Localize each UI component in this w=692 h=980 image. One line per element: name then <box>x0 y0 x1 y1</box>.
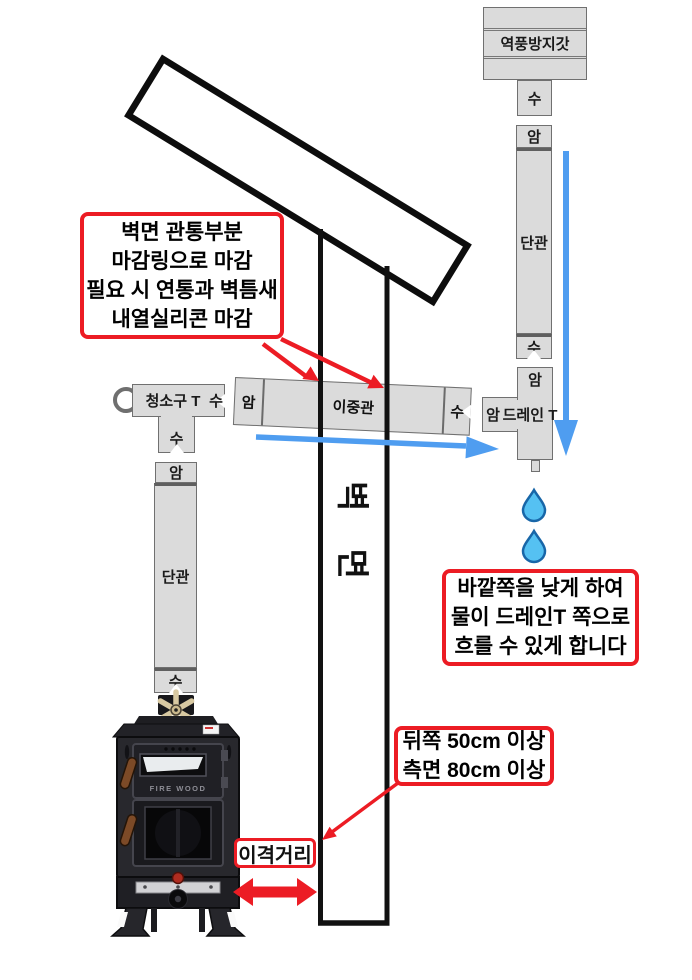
damper-knob <box>173 873 184 884</box>
double-pipe-female-collar: 암 <box>234 378 265 425</box>
ash-fan <box>169 890 188 909</box>
callout-line: 바깥쪽을 낮게 하여 <box>446 574 635 603</box>
clearance-spec-callout: 뒤쪽 50cm 이상 측면 80cm 이상 <box>394 726 554 786</box>
slope-arrow <box>256 437 466 446</box>
male-notch <box>169 684 183 693</box>
rain-cap-top-band <box>484 8 586 28</box>
damper-star-icon <box>160 692 191 728</box>
stove: FIRE WOOD <box>112 692 244 936</box>
double-pipe-body: 이중관 <box>263 379 444 433</box>
cap-male-connector: 수 <box>517 80 552 116</box>
stove-flue-collar <box>158 695 194 715</box>
rain-cap-bottom-band <box>484 59 586 79</box>
lower-door-handle <box>119 814 137 847</box>
base-vent-strip <box>136 882 220 893</box>
stove-window <box>140 754 206 776</box>
callout-line: 필요 시 연통과 벽틈새 <box>84 276 280 305</box>
stove-base <box>117 877 239 908</box>
drain-nozzle <box>531 460 540 472</box>
callout-line: 측면 80cm 이상 <box>398 756 550 785</box>
stove-body <box>117 737 239 877</box>
stove-brand-text: FIRE WOOD <box>150 784 207 793</box>
wall-label: 벽 면 <box>333 457 371 617</box>
callout-line: 마감링으로 마감 <box>84 247 280 276</box>
right-female-collar: 암 <box>516 125 552 148</box>
callout-line: 내열실리콘 마감 <box>84 305 280 334</box>
stove-lower-door <box>133 800 223 866</box>
rain-cap-label: 역풍방지갓 <box>500 33 569 54</box>
callout-line: 벽면 관통부분 <box>84 218 280 247</box>
clearance-double-arrow <box>233 878 317 906</box>
stove-upper-door <box>133 744 223 798</box>
rain-cap: 역풍방지갓 <box>483 7 587 80</box>
stove-leg-left <box>112 908 149 936</box>
callout-line: 뒤쪽 50cm 이상 <box>398 727 550 756</box>
clearance-label: 이격거리 <box>238 839 312 868</box>
male-notch <box>461 404 471 418</box>
female-label: 암 <box>169 462 183 483</box>
drain-top-female-label: 암 <box>517 369 553 389</box>
upper-door-handle <box>119 757 137 790</box>
single-pipe-label: 단관 <box>520 232 548 253</box>
clearance-label-box: 이격거리 <box>234 838 316 868</box>
stove-top-plate <box>113 724 239 737</box>
lower-window <box>145 807 211 859</box>
left-female-collar: 암 <box>155 462 197 483</box>
double-pipe-male-collar: 수 <box>442 388 471 435</box>
window-reflection <box>143 757 203 772</box>
single-pipe-label: 단관 <box>162 566 190 587</box>
right-single-pipe: 단관 <box>516 148 552 334</box>
cleanout-male-label: 수 <box>206 390 226 410</box>
male-notch <box>527 350 541 359</box>
female-label: 암 <box>241 391 256 413</box>
stove-top-step <box>134 716 218 724</box>
water-drop-icon <box>523 490 545 562</box>
male-notch <box>170 444 184 453</box>
stove-installation-diagram: 역풍방지갓 수 암 단관 수 암 암 드레인 T 암 이중관 수 <box>0 0 692 980</box>
left-male-end: 수 <box>154 668 197 693</box>
left-single-pipe: 단관 <box>154 483 197 668</box>
cleanout-tee-stem: 수 <box>158 416 195 453</box>
cleanout-tee-joint <box>161 414 192 419</box>
drain-flow-callout: 바깥쪽을 낮게 하여 물이 드레인T 쪽으로 흐를 수 있게 합니다 <box>442 569 639 666</box>
cleanout-tee-label: 청소구 T <box>138 390 208 410</box>
double-pipe-label: 이중관 <box>332 395 374 418</box>
drain-tee-label: 드레인 T <box>492 404 568 424</box>
double-pipe: 암 이중관 수 <box>233 377 472 436</box>
air-holes <box>164 747 195 750</box>
male-label: 수 <box>528 88 542 109</box>
stove-sticker <box>203 725 219 734</box>
stove-leg-right <box>207 908 244 936</box>
callout-line: 흐를 수 있게 합니다 <box>446 632 635 661</box>
wall-penetration-callout: 벽면 관통부분 마감링으로 마감 필요 시 연통과 벽틈새 내열실리콘 마감 <box>80 212 284 339</box>
callout-line: 물이 드레인T 쪽으로 <box>446 603 635 632</box>
clearance-leader-line <box>332 783 398 832</box>
female-label: 암 <box>527 126 541 147</box>
right-male-end: 수 <box>516 334 552 359</box>
